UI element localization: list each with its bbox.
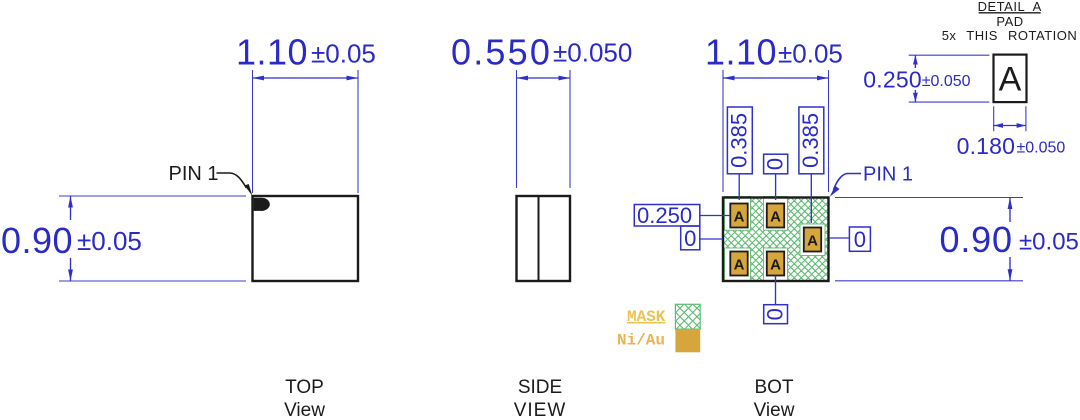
svg-text:±0.050: ±0.050 — [922, 73, 971, 90]
svg-text:±0.05: ±0.05 — [311, 38, 376, 68]
svg-text:±0.050: ±0.050 — [1017, 140, 1066, 157]
svg-text:View: View — [284, 400, 325, 420]
svg-text:A: A — [770, 256, 781, 273]
svg-text:0.90: 0.90 — [940, 219, 1013, 260]
svg-text:0: 0 — [763, 308, 788, 320]
svg-text:A: A — [807, 232, 818, 249]
svg-text:0.250: 0.250 — [863, 67, 922, 93]
svg-text:0.385: 0.385 — [727, 113, 752, 168]
svg-text:SIDE: SIDE — [518, 377, 562, 398]
svg-text:DETAIL A: DETAIL A — [978, 0, 1042, 14]
svg-text:View: View — [754, 400, 795, 420]
svg-text:Ni/Au: Ni/Au — [617, 332, 665, 350]
svg-text:1.10: 1.10 — [705, 31, 777, 72]
svg-text:0.250: 0.250 — [637, 203, 692, 228]
svg-text:A: A — [770, 208, 781, 225]
svg-text:A: A — [999, 61, 1022, 99]
svg-text:±0.05: ±0.05 — [77, 226, 142, 256]
svg-text:5x THIS ROTATION: 5x THIS ROTATION — [942, 28, 1078, 43]
svg-text:TOP: TOP — [285, 377, 324, 398]
svg-text:BOT: BOT — [754, 377, 793, 398]
svg-text:MASK: MASK — [627, 308, 666, 326]
svg-text:0.180: 0.180 — [957, 133, 1016, 159]
svg-text:0: 0 — [763, 158, 788, 170]
svg-text:±0.050: ±0.050 — [553, 38, 632, 68]
svg-text:PAD: PAD — [996, 14, 1023, 29]
svg-text:A: A — [734, 256, 745, 273]
svg-text:A: A — [734, 208, 745, 225]
svg-text:0.385: 0.385 — [798, 113, 823, 168]
svg-text:VIEW: VIEW — [514, 400, 567, 420]
svg-text:PIN 1: PIN 1 — [169, 163, 219, 185]
svg-text:0: 0 — [854, 227, 866, 252]
svg-text:0: 0 — [684, 226, 696, 251]
svg-text:PIN 1: PIN 1 — [863, 163, 913, 185]
svg-text:0.550: 0.550 — [451, 31, 552, 72]
svg-text:1.10: 1.10 — [236, 31, 308, 72]
svg-text:0.90: 0.90 — [1, 220, 73, 261]
svg-text:±0.05: ±0.05 — [778, 38, 843, 68]
svg-text:±0.05: ±0.05 — [1019, 229, 1079, 256]
